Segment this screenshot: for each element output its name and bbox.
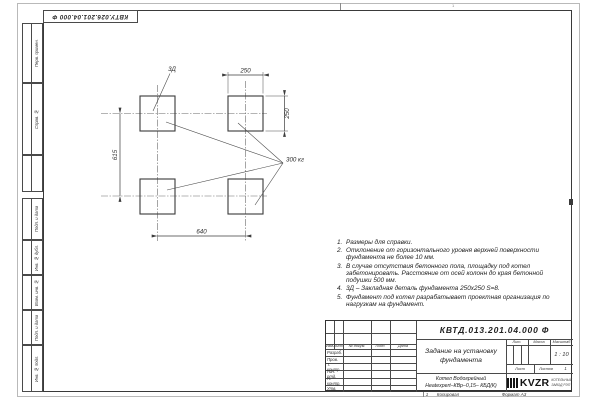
edge-center-mark: [569, 199, 573, 205]
margin-strip-label: Взам. инв. №: [31, 276, 42, 309]
margin-strip-label: Подп. и дата: [31, 199, 42, 239]
margin-strip-vzam-inv: Взам. инв. №: [22, 275, 43, 310]
logo-text: KVZR: [520, 377, 549, 389]
note-item: 1. Размеры для справки.: [337, 239, 561, 246]
sheets-value: 1: [558, 364, 573, 373]
first-use-doc-number: КВТУ.026.201.04.000 Ф: [52, 13, 128, 20]
note-number: 1.: [337, 239, 346, 246]
kvzr-logo: KVZR КОТЕЛЬНЫЙ ЗАВОД РЭП: [506, 373, 573, 392]
scale-value: 1 : 10: [550, 345, 573, 364]
margin-strip-label: Перв. примен.: [31, 24, 42, 82]
note-item: 3. В случае отсутствия бетонного пола, п…: [337, 263, 561, 285]
sheets-label: Листов: [534, 364, 558, 373]
margin-strip-podp-data-1: Подп. и дата: [22, 198, 43, 240]
foundation-plan-drawing: 250 250 615 640 3Д 300 кг: [95, 55, 325, 250]
margin-strip-label: Инв. № дубл.: [31, 241, 42, 274]
col-data: Дата: [390, 344, 416, 349]
first-use-doc-number-box: КВТУ.026.201.04.000 Ф: [43, 10, 138, 23]
margin-strip-perv-primen: Перв. примен.: [22, 23, 43, 83]
document-number: КВТД.013.201.04.000 Ф: [416, 321, 573, 339]
notes-list: 1. Размеры для справки. 2. Отклонение от…: [337, 239, 561, 309]
format-label: Формат А3: [494, 392, 534, 397]
margin-strip-inv-podl: Инв. № подл.: [22, 345, 43, 392]
col-dokum: № докум.: [343, 344, 371, 349]
logo-mark-icon: [507, 378, 518, 388]
note-text: 3Д – Закладная деталь фундамента 250х250…: [346, 285, 500, 292]
divider: [31, 156, 32, 191]
grid-line: [326, 333, 416, 334]
margin-strip-empty: [22, 155, 43, 192]
zone-tick: [340, 3, 341, 10]
dim-640-label: 640: [196, 229, 207, 236]
margin-strip-label: Подп. и дата: [31, 311, 42, 344]
note-item: 5. Фундамент под котел разрабатывает про…: [337, 294, 561, 308]
center-lines: [101, 81, 267, 241]
grid-line: [513, 345, 514, 364]
drawing-title: Задание на установку фундамента: [416, 339, 506, 373]
embed-detail-label: 3Д: [168, 66, 176, 73]
row-utv: Утв.: [327, 385, 343, 392]
note-number: 4.: [337, 285, 346, 292]
product-name: Котел Водогрейный Heatexpert–КВр–0,15– К…: [416, 373, 506, 392]
title-block: Изм. Лист № докум. Подп. Дата Разраб. Пр…: [325, 320, 572, 391]
dim-250-top-label: 250: [239, 68, 251, 75]
zone-number: 1: [452, 3, 454, 8]
note-number: 3.: [337, 263, 346, 285]
note-text: Отклонение от горизонтального уровня вер…: [346, 247, 561, 261]
dim-250-right-label: 250: [284, 108, 291, 120]
margin-strip-label: Справ. №: [31, 84, 42, 154]
sheet-label: Лист: [506, 364, 534, 373]
extension-lines: [228, 72, 288, 131]
grid-line: [528, 339, 529, 364]
note-text: Размеры для справки.: [346, 239, 412, 246]
grid-line: [521, 345, 522, 364]
margin-strip-inv-dubl: Инв. № дубл.: [22, 240, 43, 275]
logo-caption: КОТЕЛЬНЫЙ ЗАВОД РЭП: [551, 378, 572, 386]
margin-strip-sprav: Справ. №: [22, 83, 43, 155]
margin-strip-label: Инв. № подл.: [31, 346, 42, 391]
row-n-kontr: Н. контр.: [327, 378, 343, 385]
note-number: 5.: [337, 294, 346, 308]
margin-strip-podp-data-2: Подп. и дата: [22, 310, 43, 345]
dim-615-label: 615: [112, 149, 119, 160]
drawing-sheet: { "page": { "doc_number_top": "КВТУ.026.…: [0, 0, 600, 400]
copied-label: Копировал: [430, 392, 466, 397]
load-label: 300 кг: [286, 157, 304, 164]
note-text: В случае отсутствия бетонного пола, площ…: [346, 263, 561, 285]
note-number: 2.: [337, 247, 346, 261]
note-item: 2. Отклонение от горизонтального уровня …: [337, 247, 561, 261]
note-item: 4. 3Д – Закладная деталь фундамента 250х…: [337, 285, 561, 292]
row-razrab: Разраб.: [327, 349, 343, 356]
note-text: Фундамент под котел разрабатывает проект…: [346, 294, 561, 308]
col-podp: Подп.: [371, 344, 390, 349]
